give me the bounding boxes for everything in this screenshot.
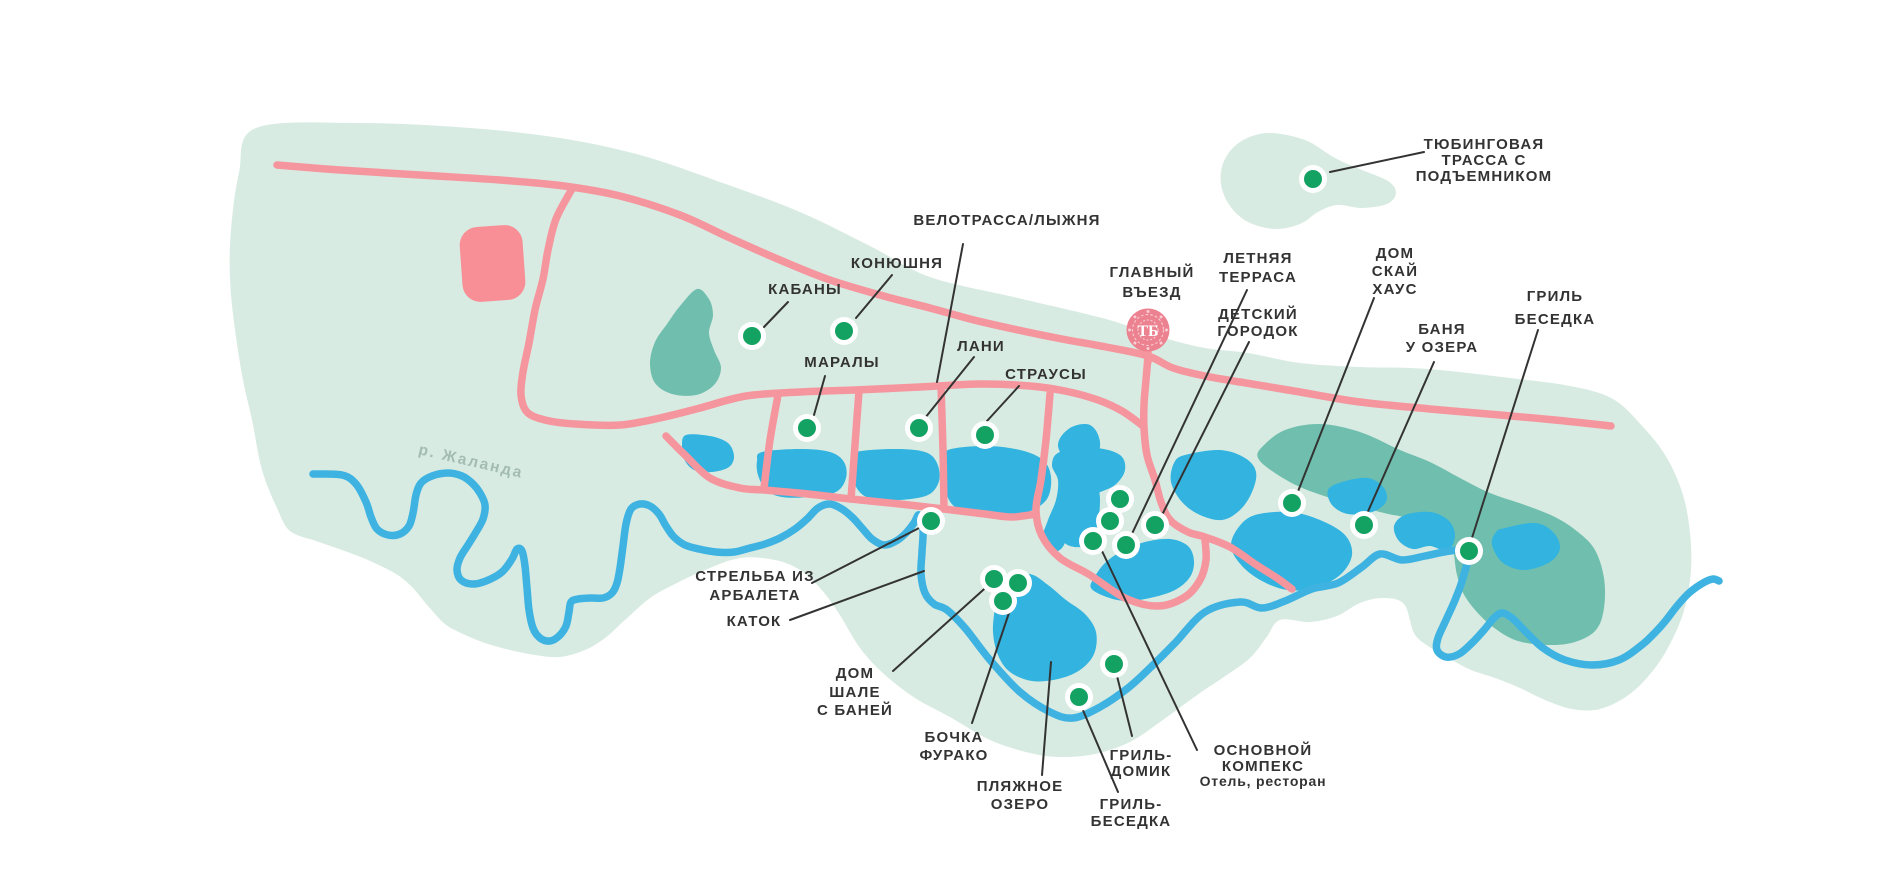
svg-text:БЕСЕДКА: БЕСЕДКА (1515, 311, 1596, 328)
svg-text:ТБ: ТБ (1137, 323, 1158, 340)
svg-text:ГЛАВНЫЙ: ГЛАВНЫЙ (1109, 263, 1194, 281)
svg-text:ОЗЕРО: ОЗЕРО (991, 796, 1050, 813)
svg-text:ПОДЪЕМНИКОМ: ПОДЪЕМНИКОМ (1416, 168, 1553, 185)
svg-text:С БАНЕЙ: С БАНЕЙ (817, 701, 893, 719)
svg-text:ДОМ: ДОМ (1376, 245, 1414, 262)
svg-text:ДОМ: ДОМ (836, 665, 874, 682)
svg-text:МАРАЛЫ: МАРАЛЫ (804, 354, 879, 371)
svg-text:ШАЛЕ: ШАЛЕ (829, 684, 880, 701)
svg-text:ЛЕТНЯЯ: ЛЕТНЯЯ (1223, 250, 1292, 267)
svg-text:СТРЕЛЬБА ИЗ: СТРЕЛЬБА ИЗ (695, 568, 815, 585)
svg-text:ПЛЯЖНОЕ: ПЛЯЖНОЕ (977, 778, 1064, 795)
svg-text:ГОРОДОК: ГОРОДОК (1217, 323, 1298, 340)
svg-text:СКАЙ: СКАЙ (1372, 262, 1418, 280)
svg-text:ТРАССА С: ТРАССА С (1441, 152, 1526, 169)
svg-text:ДЕТСКИЙ: ДЕТСКИЙ (1218, 305, 1298, 323)
svg-text:У ОЗЕРА: У ОЗЕРА (1406, 339, 1479, 356)
svg-text:ГРИЛЬ: ГРИЛЬ (1527, 288, 1584, 305)
svg-text:КАБАНЫ: КАБАНЫ (768, 281, 842, 298)
svg-text:ХАУС: ХАУС (1372, 281, 1417, 298)
svg-text:ГРИЛЬ-: ГРИЛЬ- (1110, 747, 1173, 764)
svg-text:ОСНОВНОЙ: ОСНОВНОЙ (1214, 741, 1313, 759)
svg-text:БЕСЕДКА: БЕСЕДКА (1091, 813, 1172, 830)
svg-text:БОЧКА: БОЧКА (925, 729, 984, 746)
svg-text:ВЕЛОТРАССА/ЛЫЖНЯ: ВЕЛОТРАССА/ЛЫЖНЯ (913, 212, 1100, 229)
svg-text:БАНЯ: БАНЯ (1418, 321, 1465, 338)
svg-text:ЛАНИ: ЛАНИ (957, 338, 1005, 355)
svg-text:ГРИЛЬ-: ГРИЛЬ- (1100, 796, 1163, 813)
svg-text:АРБАЛЕТА: АРБАЛЕТА (709, 587, 800, 604)
svg-text:ВЪЕЗД: ВЪЕЗД (1122, 284, 1181, 301)
svg-text:СТРАУСЫ: СТРАУСЫ (1005, 366, 1087, 383)
svg-text:ФУРАКО: ФУРАКО (919, 747, 988, 764)
svg-text:Отель, ресторан: Отель, ресторан (1200, 773, 1327, 789)
svg-text:КОНЮШНЯ: КОНЮШНЯ (851, 255, 943, 272)
svg-text:ТЮБИНГОВАЯ: ТЮБИНГОВАЯ (1424, 136, 1545, 153)
svg-text:ТЕРРАСА: ТЕРРАСА (1219, 269, 1297, 286)
svg-text:ДОМИК: ДОМИК (1111, 763, 1172, 780)
svg-text:КАТОК: КАТОК (727, 613, 782, 630)
